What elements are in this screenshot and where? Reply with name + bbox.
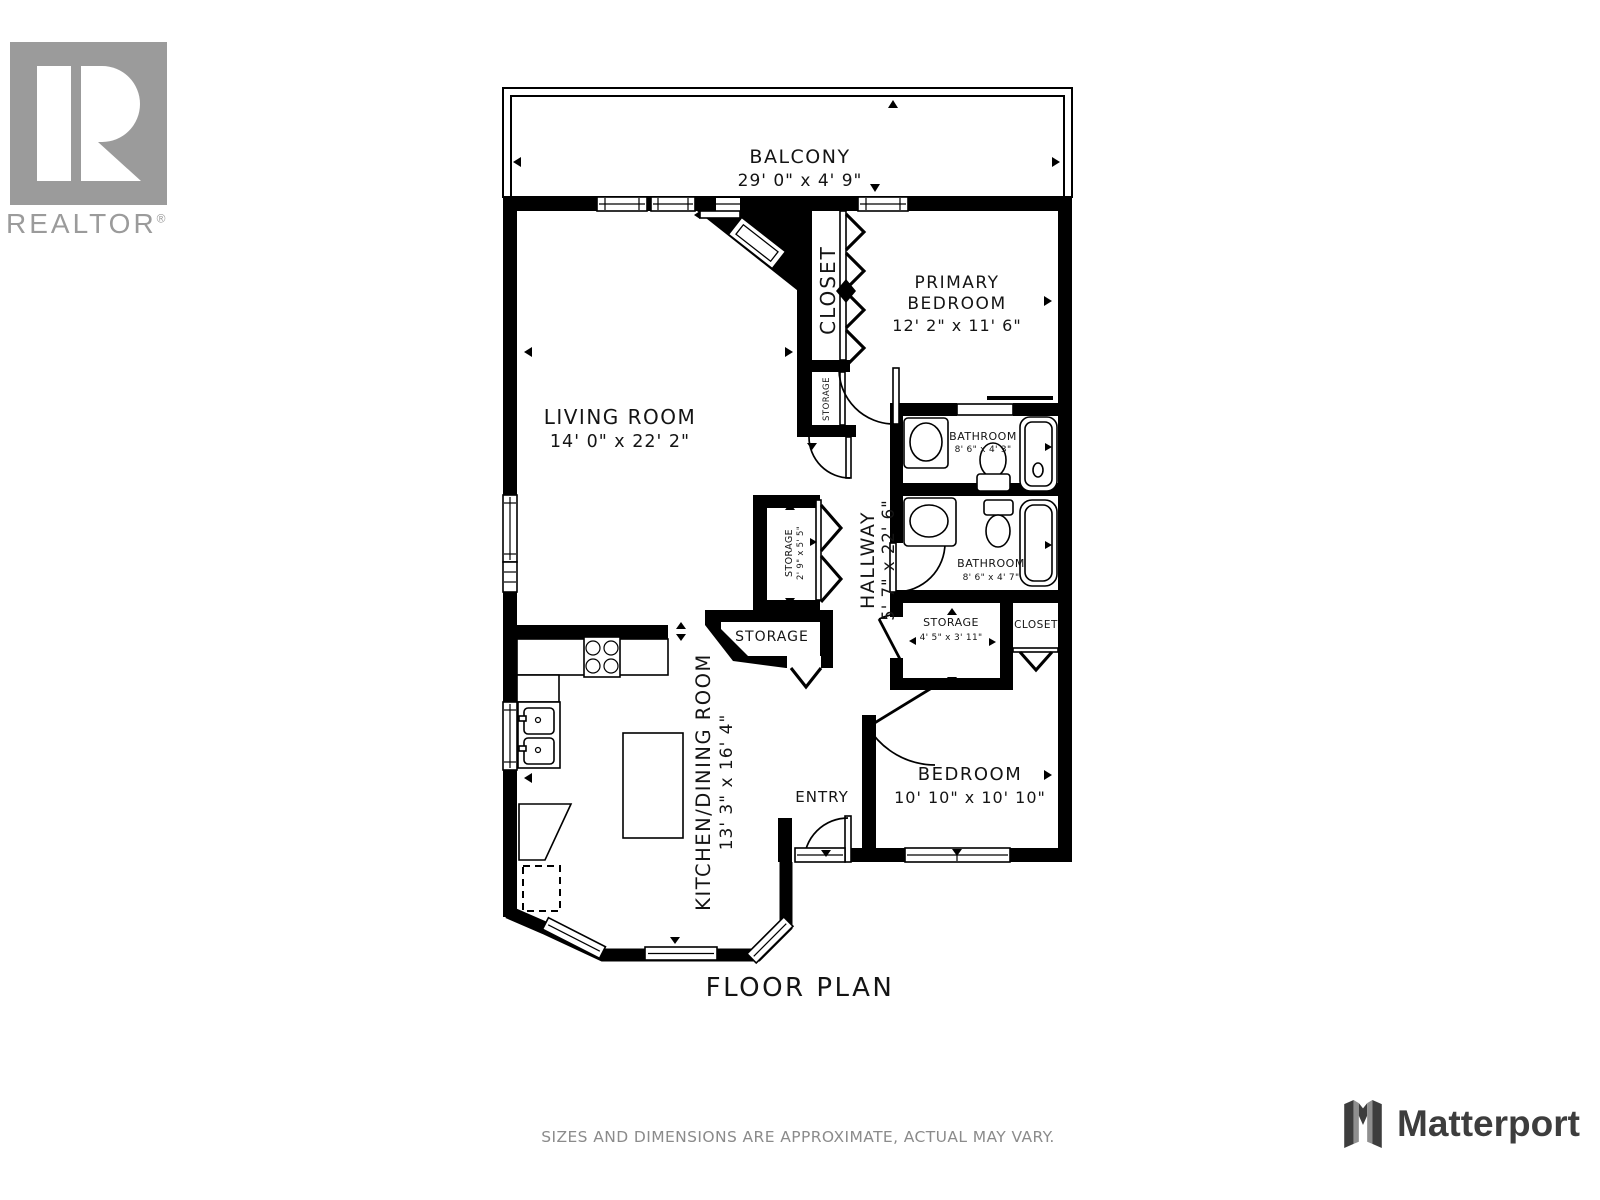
- bathroom-door: [890, 543, 945, 592]
- room-label-bedroom-closet: CLOSET: [1014, 619, 1058, 631]
- bay-window: [645, 947, 717, 960]
- appliance-dashed: [523, 866, 560, 911]
- bedroom-door: [868, 686, 935, 765]
- counter: [517, 675, 559, 702]
- stove: [584, 637, 620, 677]
- kitchen-sink: [518, 702, 560, 768]
- toilet: [984, 500, 1013, 547]
- island: [623, 733, 683, 838]
- window: [503, 702, 517, 770]
- matterport-wordmark: Matterport: [1397, 1103, 1580, 1145]
- room-label-primary-bedroom-1: PRIMARY: [915, 273, 1000, 293]
- entry-storage-door: [787, 656, 821, 687]
- disclaimer-text: SIZES AND DIMENSIONS ARE APPROXIMATE, AC…: [541, 1128, 1054, 1146]
- room-dims-bathroom-top: 8' 6" x 4' 3": [955, 445, 1012, 455]
- entry-door: [795, 816, 851, 862]
- room-label-primary-closet: CLOSET: [816, 245, 840, 335]
- room-dims-bathroom-bottom: 8' 6" x 4' 7": [963, 573, 1020, 583]
- pocket-door: [957, 404, 1013, 415]
- bathtub: [1020, 500, 1057, 586]
- matterport-m-icon: [1344, 1100, 1382, 1148]
- bay-window: [747, 917, 793, 963]
- room-dims-balcony: 29' 0" x 4' 9": [738, 171, 863, 191]
- room-label-bathroom-bottom: BATHROOM: [957, 557, 1025, 570]
- bathtub: [1020, 417, 1057, 491]
- room-label-primary-bedroom-2: BEDROOM: [907, 294, 1006, 314]
- room-label-hall-storage: STORAGE: [784, 529, 795, 577]
- bedroom-closet-door: [1013, 648, 1058, 670]
- room-dims-hallway: 5' 7" x 22' 6": [879, 499, 898, 620]
- fireplace-corner: [697, 211, 812, 302]
- floor-plan-drawing: BALCONY 29' 0" x 4' 9" LIVING ROOM 14' 0…: [0, 0, 1600, 1200]
- plan-title: FLOOR PLAN: [706, 973, 895, 1003]
- vent-window: [503, 562, 517, 592]
- window: [597, 197, 647, 211]
- hall-storage-bifold-doors: [816, 500, 841, 602]
- window: [858, 197, 908, 211]
- room-label-balcony: BALCONY: [749, 146, 850, 168]
- window: [503, 495, 517, 562]
- room-label-bathroom-top: BATHROOM: [949, 430, 1017, 443]
- room-label-entry-storage: STORAGE: [735, 629, 809, 645]
- room-label-closet-storage: STORAGE: [822, 377, 832, 421]
- room-label-kitchen-dining: KITCHEN/DINING ROOM: [692, 653, 715, 911]
- room-label-bedroom-storage: STORAGE: [923, 616, 979, 629]
- room-label-bedroom: BEDROOM: [918, 764, 1022, 785]
- room-label-hallway: HALLWAY: [857, 511, 879, 609]
- room-label-entry: ENTRY: [795, 788, 849, 806]
- room-label-living-room: LIVING ROOM: [544, 405, 697, 429]
- room-dims-primary-bedroom: 12' 2" x 11' 6": [892, 316, 1021, 335]
- room-dims-bedroom-storage: 4' 5" x 3' 11": [920, 633, 983, 643]
- sink: [904, 498, 956, 546]
- floor-plan-page: REALTOR®: [0, 0, 1600, 1200]
- window: [651, 197, 695, 211]
- bay-window-wall: [508, 862, 786, 955]
- kitchen-fixtures: [517, 637, 683, 911]
- sink: [904, 418, 948, 468]
- angled-counter: [519, 804, 571, 860]
- closet-bifold-doors: [836, 211, 864, 425]
- room-dims-kitchen-dining: 13' 3" x 16' 4": [717, 714, 737, 851]
- room-dims-living-room: 14' 0" x 22' 2": [550, 432, 690, 452]
- matterport-logo: Matterport: [1344, 1100, 1580, 1148]
- room-dims-hall-storage: 2' 9" x 5' 5": [796, 526, 806, 580]
- room-dims-bedroom: 10' 10" x 10' 10": [894, 788, 1046, 807]
